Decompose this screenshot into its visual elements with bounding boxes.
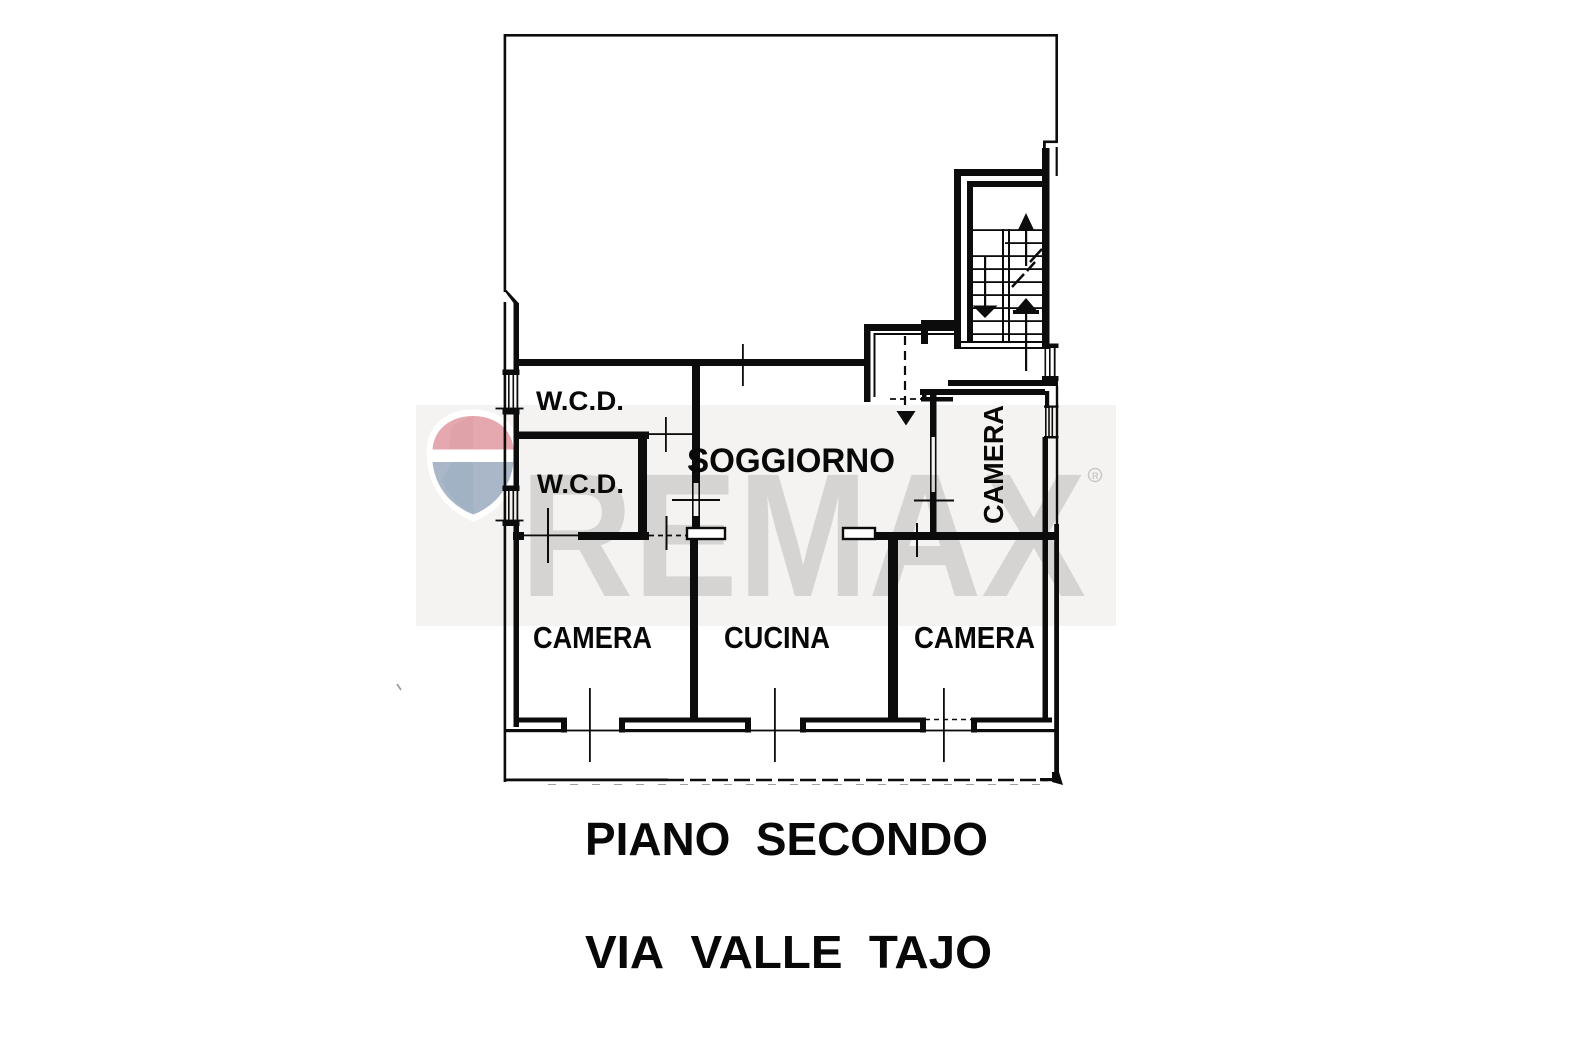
svg-text:SOGGIORNO: SOGGIORNO xyxy=(687,442,895,480)
svg-text:CAMERA: CAMERA xyxy=(533,620,652,655)
svg-text:VIA VALLE TAJO: VIA VALLE TAJO xyxy=(585,926,992,978)
svg-text:CAMERA: CAMERA xyxy=(914,620,1035,655)
svg-text:W.C.D.: W.C.D. xyxy=(537,469,624,499)
svg-text:W.C.D.: W.C.D. xyxy=(536,386,624,416)
svg-text:R: R xyxy=(1092,471,1099,481)
svg-text:CAMERA: CAMERA xyxy=(978,405,1009,524)
svg-text:CUCINA: CUCINA xyxy=(724,620,830,655)
svg-text:PIANO SECONDO: PIANO SECONDO xyxy=(585,813,988,865)
